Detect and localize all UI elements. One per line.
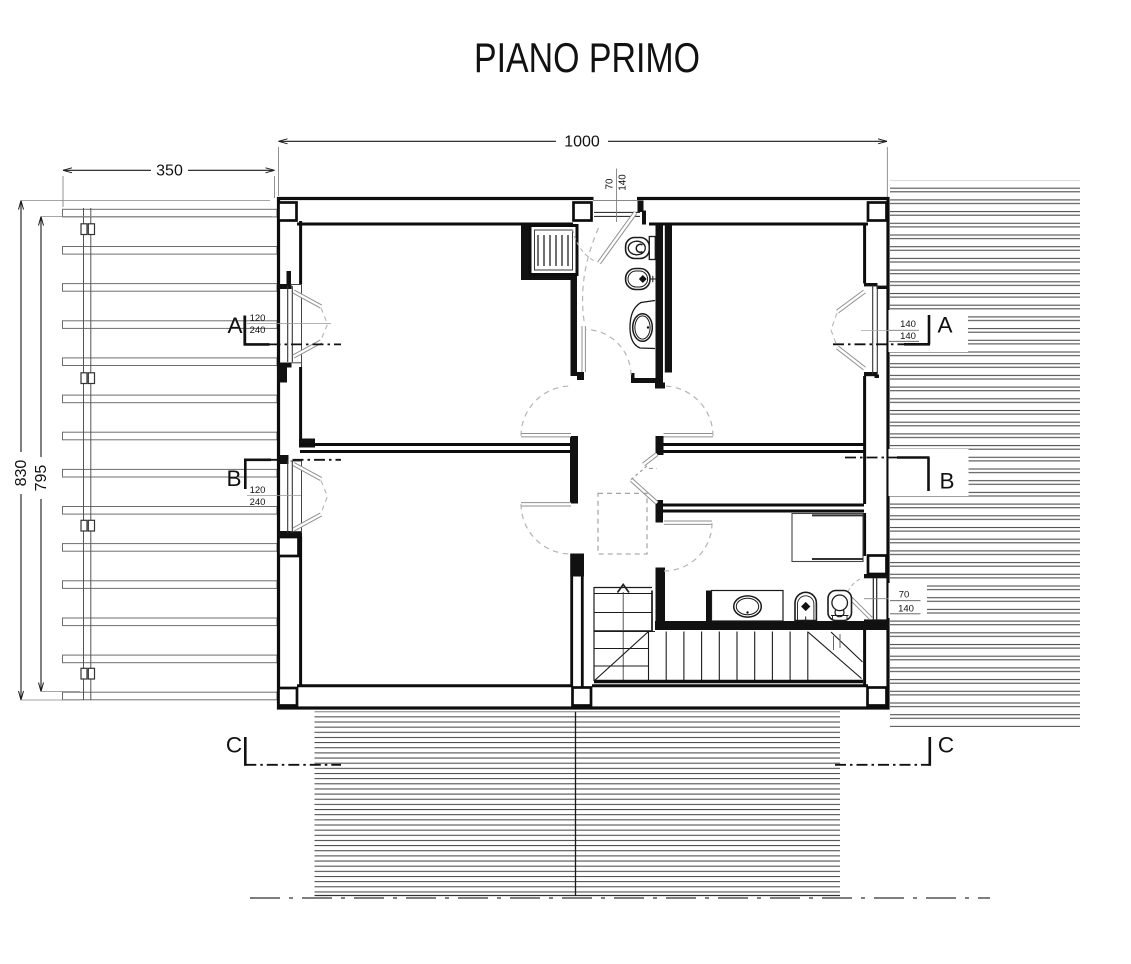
svg-text:140: 140 <box>898 603 914 614</box>
svg-text:B: B <box>226 466 241 491</box>
svg-text:830: 830 <box>13 460 30 487</box>
svg-text:350: 350 <box>156 163 183 180</box>
svg-text:140: 140 <box>618 174 629 191</box>
svg-text:140: 140 <box>900 319 916 330</box>
svg-text:C: C <box>226 733 242 758</box>
svg-text:A: A <box>937 313 952 338</box>
svg-text:PIANO PRIMO: PIANO PRIMO <box>474 34 700 81</box>
svg-text:240: 240 <box>250 325 266 336</box>
svg-text:1000: 1000 <box>564 134 600 151</box>
svg-text:240: 240 <box>250 497 266 508</box>
svg-text:70: 70 <box>605 178 616 189</box>
svg-text:A: A <box>227 313 242 338</box>
svg-text:C: C <box>938 733 954 758</box>
svg-text:140: 140 <box>900 331 916 342</box>
svg-text:70: 70 <box>899 590 910 601</box>
svg-text:795: 795 <box>33 465 50 492</box>
svg-text:120: 120 <box>250 485 266 496</box>
svg-text:120: 120 <box>250 313 266 324</box>
svg-text:B: B <box>939 469 954 494</box>
